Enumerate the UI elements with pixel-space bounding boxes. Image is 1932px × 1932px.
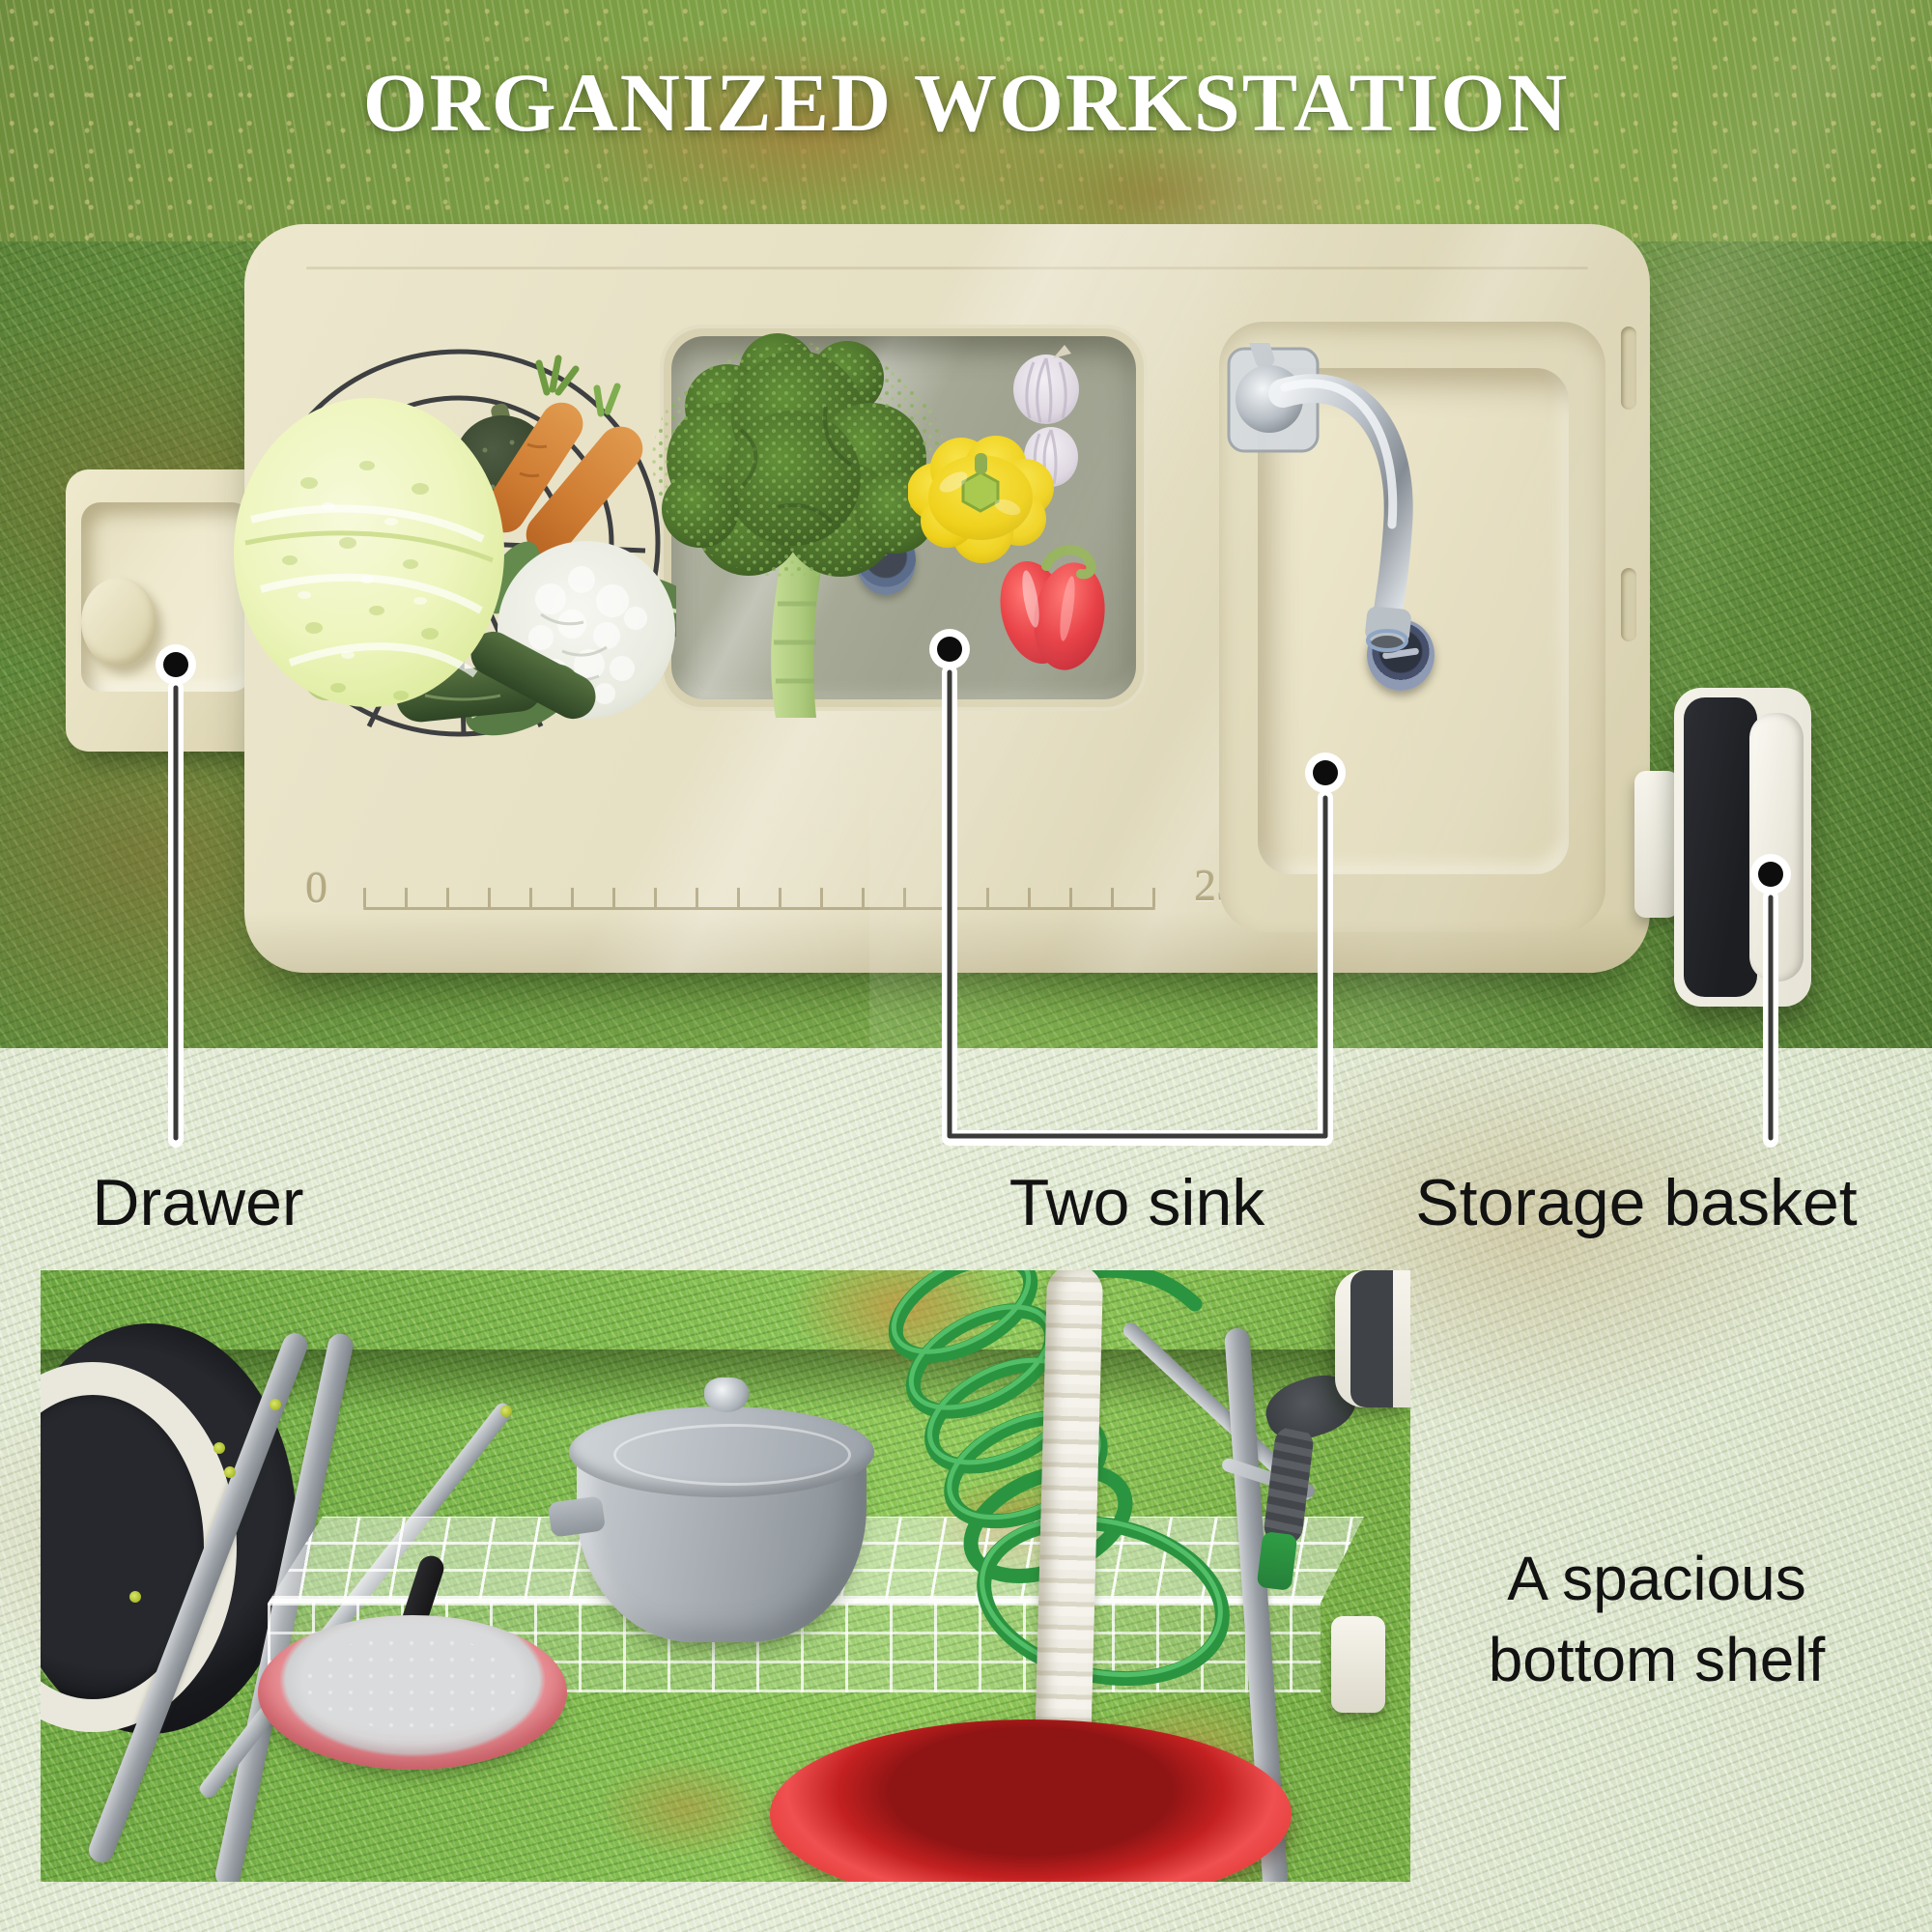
pot-lid-ring [613,1424,851,1486]
ruler-baseline [363,907,1155,910]
frying-pan [258,1555,577,1773]
tabletop-groove [306,267,1588,270]
red-bucket-rim [770,1719,1292,1882]
bottom-shelf-photo [41,1270,1410,1882]
pan-body [258,1615,567,1770]
side-latch-bottom [1331,1616,1385,1713]
brace-screw [213,1442,225,1454]
drawer-handle-notch [81,578,156,667]
ruler-start-number: 0 [305,862,327,913]
side-latch [1634,771,1679,918]
vegetable-basket-illustration [222,290,676,753]
pan-hammered-texture [302,1636,523,1729]
brace-screw [500,1406,512,1417]
storage-basket-side [1335,1270,1410,1407]
storage-basket [1674,688,1811,1007]
brace-screw [270,1399,281,1410]
hinge-slot-top [1621,327,1636,410]
bottom-shelf-caption: A spacious bottom shelf [1430,1538,1884,1701]
pot-lid-knob [704,1378,749,1412]
two-sink-label: Two sink [992,1165,1282,1240]
red-bucket [770,1719,1292,1882]
product-feature-infographic: 0 25 [0,0,1932,1932]
sprayer-coupler [1257,1531,1298,1591]
top-view-photo: 0 25 [0,0,1932,1048]
page-title: ORGANIZED WORKSTATION [0,54,1932,151]
red-bell-pepper [990,550,1112,675]
faucet-illustration [1225,343,1457,681]
storage-basket-inner [1684,697,1757,997]
ruler-ticks [363,888,1155,907]
storage-basket-side-band [1350,1270,1393,1407]
storage-basket-handle [1749,713,1804,981]
savoy-cabbage [234,398,504,707]
storage-basket-label: Storage basket [1395,1165,1878,1240]
broccoli-head [652,333,946,579]
drawer-label: Drawer [53,1165,343,1240]
brace-screw [224,1466,236,1478]
cooking-pot [577,1381,867,1644]
hinge-slot-bottom [1621,568,1636,641]
brace-screw [129,1591,141,1603]
molded-ruler: 0 25 [338,869,1169,916]
peppers-garlic-illustration [908,343,1159,710]
